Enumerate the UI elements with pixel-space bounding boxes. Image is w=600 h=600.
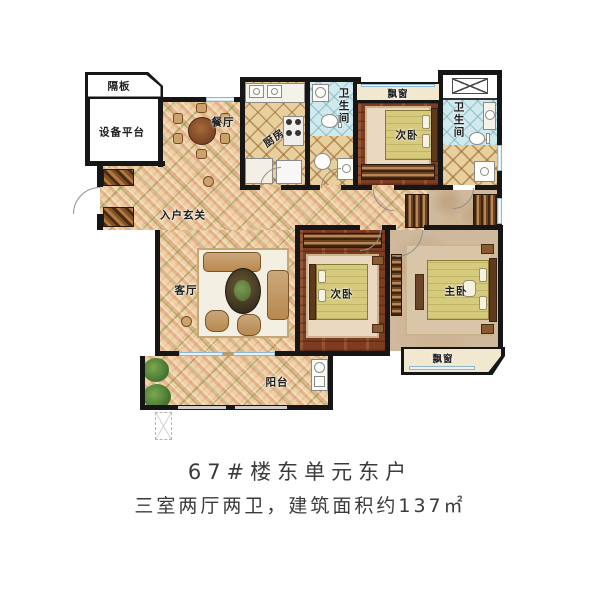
wall [353, 185, 372, 190]
window [497, 145, 502, 171]
bedroom-top-label: 次卧 [396, 128, 419, 143]
window [409, 366, 475, 370]
wardrobe-icon [103, 169, 134, 186]
wall [240, 77, 361, 82]
living-label: 客厅 [175, 283, 198, 298]
pillow [479, 268, 487, 282]
pillow [422, 134, 430, 148]
burner [286, 130, 292, 136]
wall [295, 351, 390, 356]
scale-marker-icon [155, 412, 172, 440]
toilet-icon [321, 114, 338, 128]
plant-icon [234, 280, 251, 301]
bench [415, 274, 424, 310]
shower-drain [480, 167, 489, 176]
wall [443, 98, 497, 100]
caption-line-1: 67#楼东单元东户 [0, 456, 600, 486]
dining-chair [196, 149, 207, 159]
wall [443, 185, 453, 190]
armchair [237, 314, 261, 336]
sink-icon [485, 110, 495, 120]
equipment-platform-label: 设备平台 [99, 125, 145, 140]
plant-icon [143, 358, 169, 382]
nightstand [481, 244, 494, 254]
wall [85, 99, 90, 166]
bath-top-label: 卫生间 [337, 87, 352, 125]
wall [158, 97, 208, 102]
wall [155, 230, 160, 356]
headboard [309, 264, 316, 320]
sink-drain [271, 88, 278, 95]
wall [97, 214, 103, 230]
partition-label: 隔板 [108, 79, 131, 94]
wall [240, 77, 245, 190]
dining-chair [196, 103, 207, 113]
headboard [431, 108, 438, 162]
wardrobe-icon [391, 254, 402, 316]
pillow [422, 115, 430, 129]
window [497, 198, 502, 224]
wall [498, 230, 503, 348]
wall [310, 185, 320, 190]
sliding-door-glass [179, 352, 223, 356]
armchair [205, 310, 229, 332]
pillow [318, 289, 326, 302]
wall [394, 185, 443, 190]
wall [140, 356, 145, 410]
dining-label: 餐厅 [212, 115, 235, 130]
wall [328, 356, 333, 410]
stool [181, 316, 192, 327]
wardrobe-icon [473, 194, 497, 228]
balcony-railing [235, 406, 287, 409]
stool [203, 176, 214, 187]
headboard [489, 258, 497, 322]
burner [295, 119, 301, 125]
nightstand [372, 256, 384, 265]
entry-hall-label: 入户玄关 [160, 208, 206, 223]
wardrobe-icon [405, 194, 429, 228]
window [206, 97, 236, 102]
wall [475, 185, 498, 190]
toilet-icon [469, 132, 485, 145]
wall [385, 230, 390, 356]
master-label: 主卧 [445, 284, 468, 299]
sink-drain [253, 88, 260, 95]
floor-plan: 隔板 设备平台 [85, 58, 509, 428]
dining-chair [220, 133, 230, 144]
shower-drain [342, 164, 351, 173]
wall [281, 185, 310, 190]
toilet-tank [486, 133, 490, 144]
bath-right-label: 卫生间 [452, 101, 467, 139]
wall [295, 225, 360, 230]
wall [158, 97, 163, 167]
sink-icon [314, 153, 331, 170]
wall [497, 75, 502, 145]
burner [286, 119, 292, 125]
sofa-icon [203, 252, 261, 272]
wall [275, 351, 303, 356]
burner [295, 130, 301, 136]
wall [295, 230, 300, 356]
caption-line-2: 三室两厅两卫，建筑面积约137㎡ [0, 491, 600, 518]
washer-drum [315, 87, 326, 98]
wall [240, 185, 260, 190]
wall [305, 82, 310, 185]
wall [438, 70, 502, 75]
dining-chair [173, 133, 183, 144]
sofa-icon [267, 270, 289, 320]
pillow [479, 296, 487, 310]
balcony-label: 阳台 [266, 375, 289, 390]
balcony-railing [178, 406, 226, 409]
sink-drain [314, 362, 325, 373]
nightstand [481, 324, 494, 334]
bay-window-top-label: 飘窗 [387, 86, 408, 100]
wall [424, 225, 503, 230]
dining-chair [173, 113, 183, 124]
wall [155, 351, 179, 356]
bedroom-mid-label: 次卧 [331, 287, 354, 302]
shaft-x-icon [452, 78, 488, 94]
bay-window-master-label: 飘窗 [432, 351, 453, 365]
wardrobe-icon [103, 207, 134, 227]
wall [390, 225, 396, 230]
pillow [318, 270, 326, 283]
sliding-door-glass [233, 352, 275, 356]
nightstand [372, 324, 384, 333]
sliding-door-rail [223, 352, 233, 356]
wardrobe-icon [361, 164, 435, 180]
page: { "plan": { "rooms": [ {"id": "partition… [0, 0, 600, 600]
wall [97, 166, 103, 187]
cabinet [314, 376, 325, 387]
